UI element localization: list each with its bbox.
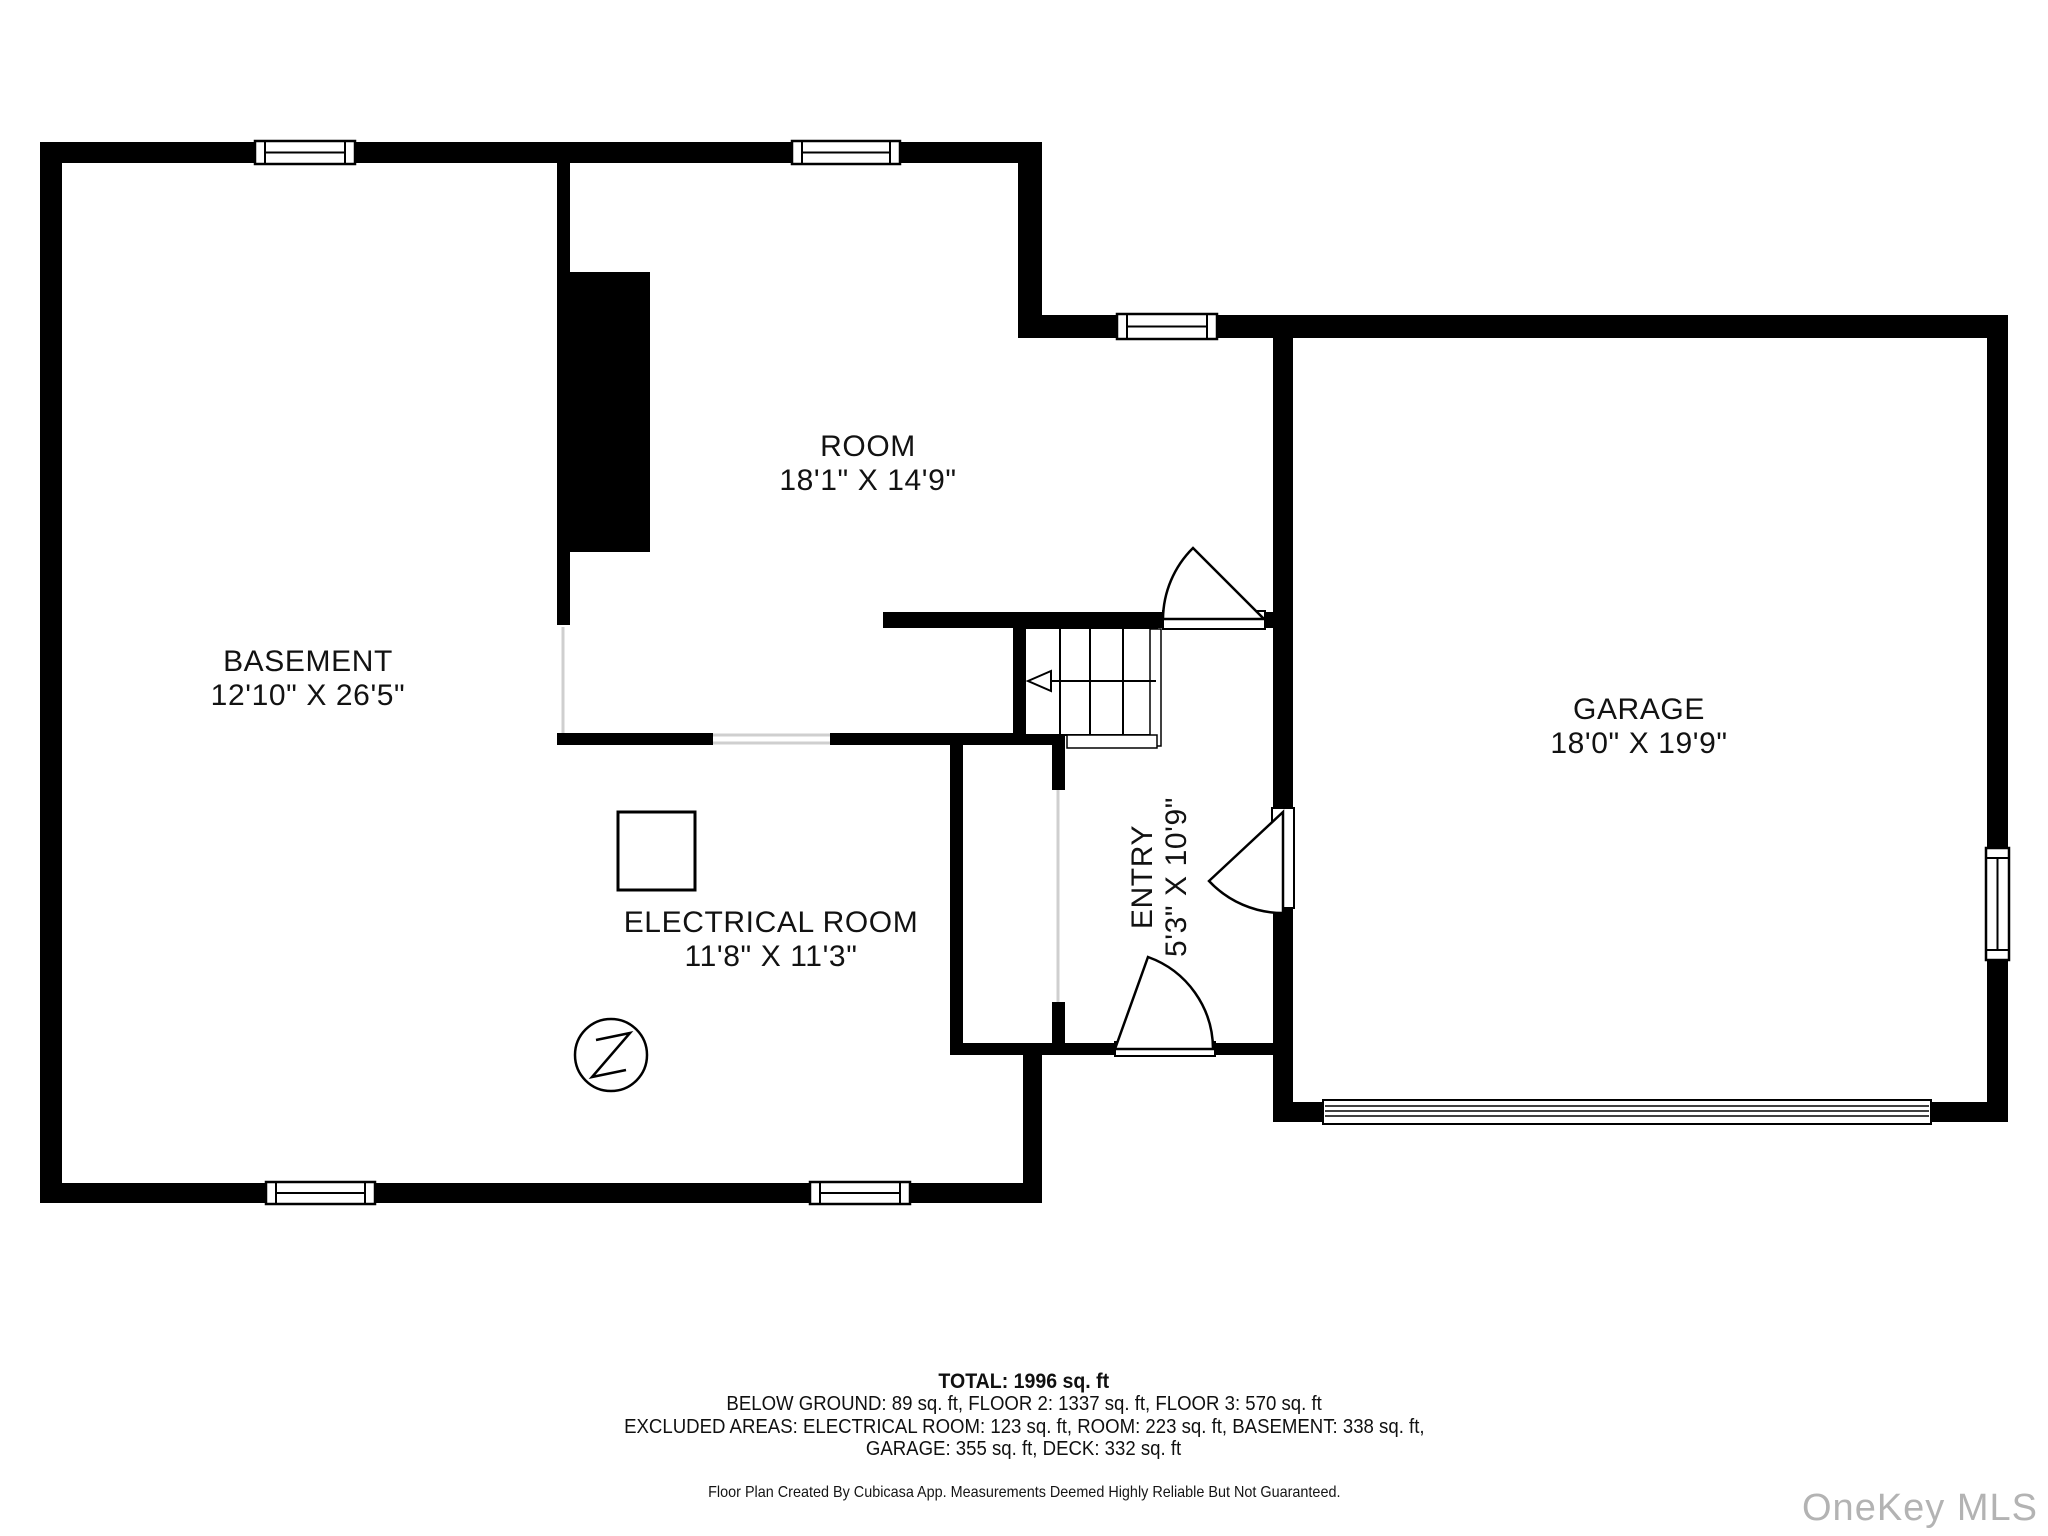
stairs — [1025, 628, 1161, 748]
left-wall — [40, 142, 62, 1203]
electrical-panel — [618, 812, 695, 890]
entry-bottom-wall-right — [1215, 1043, 1273, 1055]
window-electrical-bottom — [810, 1182, 910, 1204]
garage-left-wall — [1273, 338, 1293, 1122]
room-label-garage: GARAGE 18'0" X 19'9" — [1550, 693, 1727, 761]
summary-floors: BELOW GROUND: 89 sq. ft, FLOOR 2: 1337 s… — [0, 1393, 2048, 1415]
disclaimer-text: Floor Plan Created By Cubicasa App. Meas… — [0, 1484, 2048, 1502]
window-basement-top — [255, 141, 355, 164]
room-name: BASEMENT — [211, 645, 406, 679]
window-garage-right — [1986, 848, 2009, 960]
understairs-stub-bottom — [1052, 1002, 1065, 1043]
room-name: ENTRY — [1126, 797, 1160, 957]
room-label-basement: BASEMENT 12'10" X 26'5" — [211, 645, 406, 713]
door-arc-entry-bottom — [1115, 957, 1213, 1049]
room-bottom-wall-stub — [1265, 612, 1293, 628]
room-name: ELECTRICAL ROOM — [624, 906, 919, 940]
summary-total: TOTAL: 1996 sq. ft — [0, 1371, 2048, 1393]
stairs-left-wall — [1013, 628, 1025, 735]
summary-excluded-2: GARAGE: 355 sq. ft, DECK: 332 sq. ft — [0, 1438, 2048, 1460]
room-dimensions: 18'1" X 14'9" — [779, 464, 956, 498]
electrical-symbol-icon — [575, 1019, 647, 1091]
watermark-onekey-mls: OneKey MLS — [1802, 1487, 2038, 1530]
room-name: GARAGE — [1550, 693, 1727, 727]
room-right-wall — [1018, 163, 1042, 338]
room-bottom-wall — [883, 612, 1163, 628]
room-name: ROOM — [779, 430, 956, 464]
window-basement-bottom — [266, 1182, 375, 1204]
step-wall — [1023, 1043, 1042, 1203]
room-dimensions: 11'8" X 11'3" — [624, 940, 919, 974]
stairs-bottom-threshold — [1067, 735, 1157, 748]
room-label-electrical-room: ELECTRICAL ROOM 11'8" X 11'3" — [624, 906, 919, 974]
room-dimensions: 5'3" X 10'9" — [1160, 797, 1194, 957]
room-dimensions: 12'10" X 26'5" — [211, 679, 406, 713]
door-arc-room-stairs — [1163, 548, 1264, 619]
stairs-right-rail — [1150, 629, 1161, 746]
floor-plan-canvas — [0, 0, 2048, 1536]
floor-plan-page: BASEMENT 12'10" X 26'5" ROOM 18'1" X 14'… — [0, 0, 2048, 1536]
door-arc-entry-garage — [1209, 812, 1283, 913]
room-dimensions: 18'0" X 19'9" — [1550, 727, 1727, 761]
chimney-block — [557, 272, 650, 552]
electrical-top-wall-left — [557, 733, 713, 745]
room-label-entry: ENTRY 5'3" X 10'9" — [1126, 797, 1194, 957]
summary-excluded-1: EXCLUDED AREAS: ELECTRICAL ROOM: 123 sq.… — [0, 1416, 2048, 1438]
garage-top-wall — [1273, 315, 2008, 338]
electrical-right-wall — [950, 745, 963, 1043]
window-room-top — [792, 141, 900, 164]
garage-door — [1323, 1100, 1931, 1124]
area-summary: TOTAL: 1996 sq. ft BELOW GROUND: 89 sq. … — [0, 1371, 2048, 1461]
room-label-room: ROOM 18'1" X 14'9" — [779, 430, 956, 498]
understairs-stub-top — [1052, 745, 1065, 790]
garage-right-wall — [1987, 315, 2008, 1122]
window-entry-top — [1117, 314, 1217, 339]
